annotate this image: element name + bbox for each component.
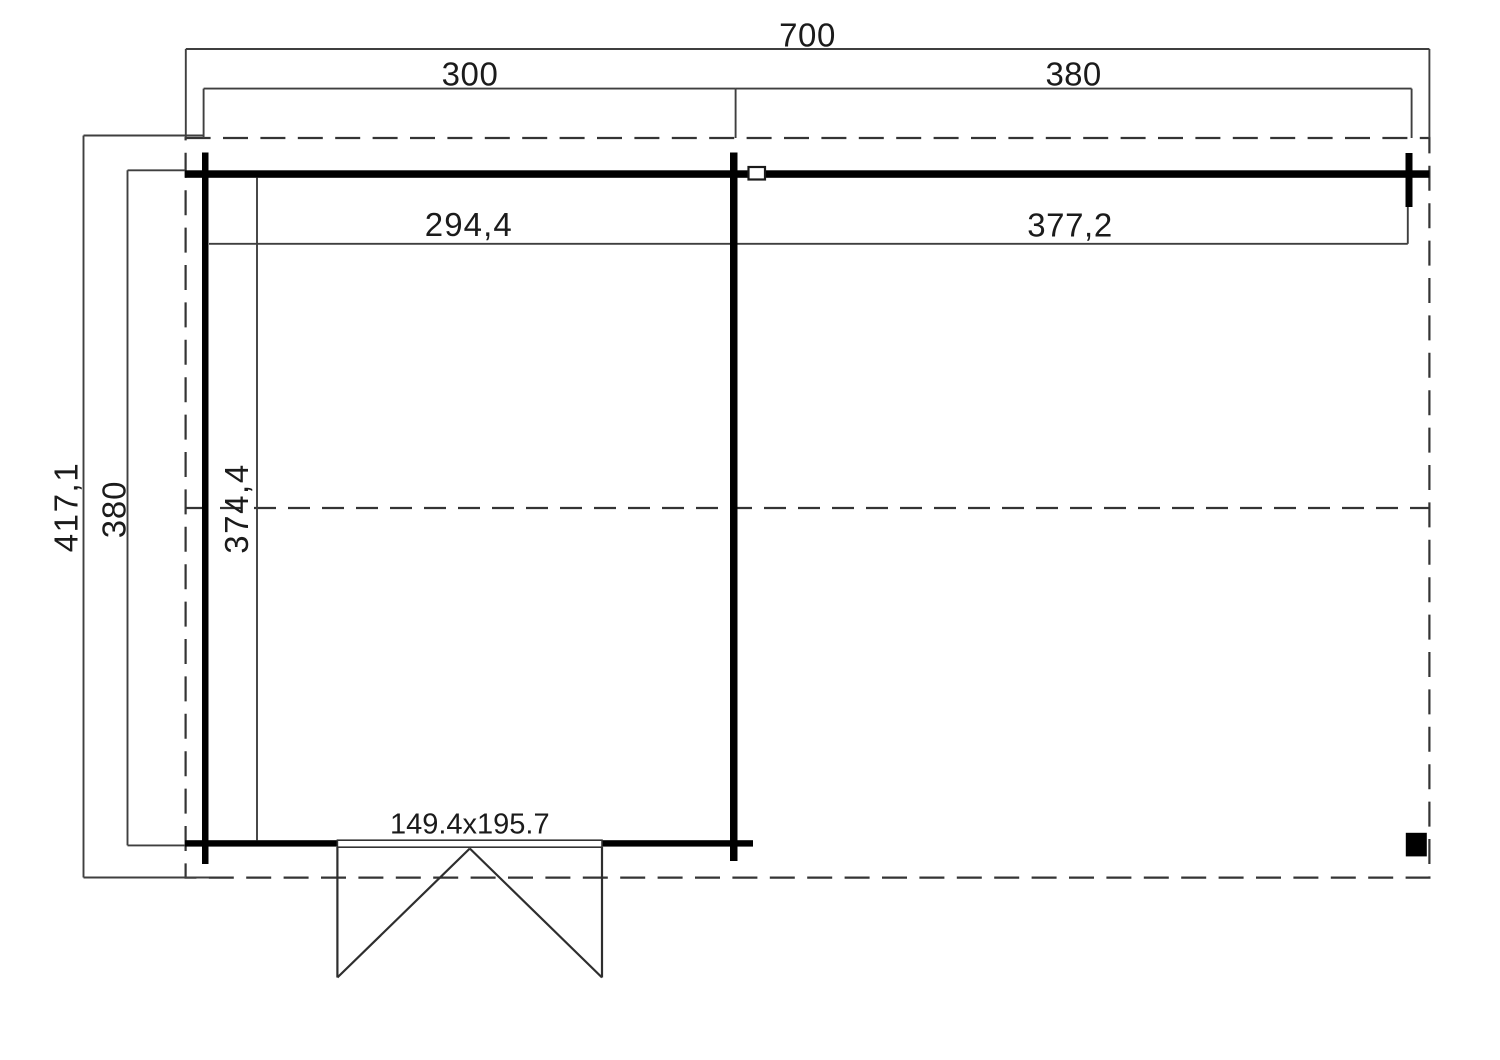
svg-text:700: 700 (779, 17, 836, 54)
svg-text:380: 380 (1046, 55, 1102, 92)
svg-text:294,4: 294,4 (425, 206, 513, 243)
svg-text:377,2: 377,2 (1027, 207, 1113, 244)
svg-text:374,4: 374,4 (218, 463, 255, 554)
svg-text:300: 300 (442, 55, 499, 92)
svg-text:149.4x195.7: 149.4x195.7 (390, 809, 550, 841)
svg-text:380: 380 (95, 481, 132, 538)
svg-text:417,1: 417,1 (48, 462, 85, 553)
